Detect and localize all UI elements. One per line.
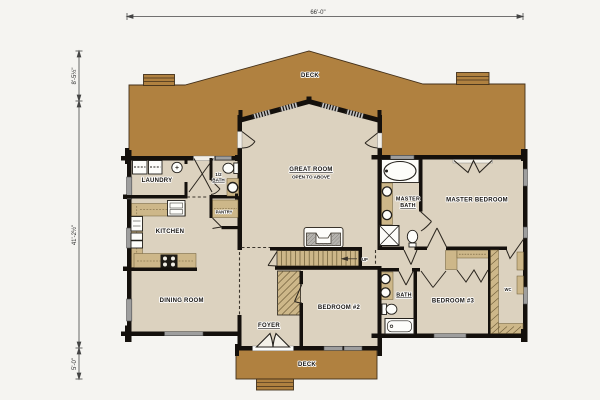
svg-text:OPEN TO ABOVE: OPEN TO ABOVE [292, 175, 330, 180]
svg-text:GREAT ROOM: GREAT ROOM [289, 167, 332, 173]
svg-text:FOYER: FOYER [258, 323, 280, 329]
svg-text:BATH: BATH [400, 203, 416, 209]
svg-text:BEDROOM #3: BEDROOM #3 [432, 299, 475, 305]
svg-text:PANTRY: PANTRY [216, 210, 233, 215]
svg-text:MASTER: MASTER [396, 197, 420, 203]
svg-text:41'-2½": 41'-2½" [71, 225, 78, 245]
svg-text:8'-5½": 8'-5½" [71, 68, 78, 85]
svg-text:BEDROOM #2: BEDROOM #2 [318, 305, 361, 311]
svg-text:DINING ROOM: DINING ROOM [160, 298, 204, 304]
svg-text:LAUNDRY: LAUNDRY [142, 178, 173, 184]
svg-text:WC: WC [505, 287, 512, 292]
svg-text:1/2: 1/2 [215, 172, 222, 177]
svg-text:BATH: BATH [396, 293, 412, 299]
svg-text:DECK: DECK [298, 362, 316, 368]
svg-text:66'-0": 66'-0" [310, 10, 325, 16]
svg-text:MASTER BEDROOM: MASTER BEDROOM [446, 198, 508, 204]
svg-text:5'-0": 5'-0" [72, 358, 78, 370]
svg-text:KITCHEN: KITCHEN [156, 229, 184, 235]
svg-text:UP: UP [362, 257, 368, 262]
svg-text:DECK: DECK [301, 73, 319, 79]
svg-text:BATH: BATH [212, 178, 225, 183]
